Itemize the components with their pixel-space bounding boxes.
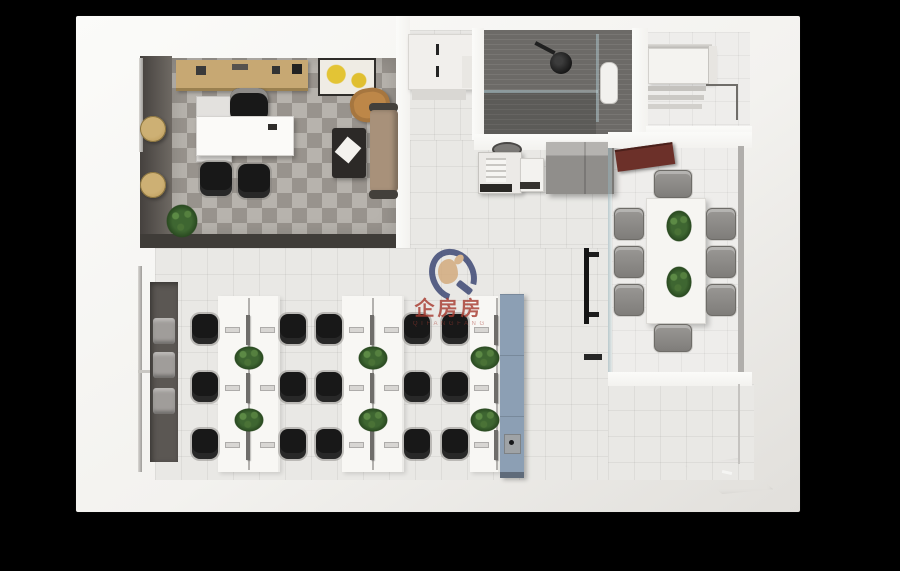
sofa [370,110,398,192]
meeting-chair [614,246,644,278]
cabinet-handle [436,66,439,77]
office-chair [280,429,306,459]
meeting-room-right-wall-edge [738,146,744,374]
qifangfang-logo [422,246,476,298]
keyboard [260,385,275,391]
plant [358,346,388,370]
office-chair [404,429,430,459]
gray-cabinet [546,142,614,194]
counter-edge [706,84,738,86]
desk-phone [268,124,277,130]
shower-fixture [550,52,572,74]
keyboard [384,442,399,448]
office-chair [316,372,342,402]
guest-chair [200,162,232,196]
storage-cabinet [648,48,714,84]
desk-bench [218,296,280,472]
bathroom-left-wall [472,28,484,140]
keyboard [349,327,364,333]
meeting-room-top-wall [608,132,752,148]
monitor [370,430,374,460]
keyboard [474,385,489,391]
credenza-phone [292,64,302,74]
doormat-mark [722,470,732,475]
storage-shelf [648,95,704,100]
niche-cushion [153,388,175,414]
keyboard [225,327,240,333]
office-chair [316,314,342,344]
meeting-chair [654,324,692,352]
water-dispenser-base [520,182,540,189]
bathroom-right-wall [632,28,648,132]
storage-shelf [648,86,706,91]
entry-glass-door [138,266,142,472]
office-chair [404,372,430,402]
watermark-title: 企房房 [394,298,504,320]
monitor [246,430,250,460]
credenza-item [196,66,206,75]
counter-edge [736,84,738,120]
keyboard [260,442,275,448]
office-chair [192,372,218,402]
niche-cushion [153,352,175,378]
guest-chair [238,164,270,198]
meeting-room-glass-wall [608,148,612,374]
plant [470,408,500,432]
monitor [494,430,498,460]
credenza-item [272,66,280,74]
plant [358,408,388,432]
office-chair [192,314,218,344]
meeting-chair [654,170,692,198]
meeting-chair [706,284,736,316]
glass-partition [484,90,598,93]
meeting-chair [614,208,644,240]
keyboard [225,385,240,391]
monitor [370,315,374,345]
plant [234,408,264,432]
meeting-chair [706,246,736,278]
keyboard [384,385,399,391]
plant [666,210,692,242]
meeting-chair [706,208,736,240]
device-dot [509,440,514,445]
keyboard [225,442,240,448]
plant [234,346,264,370]
gray-cabinet-seam [584,142,586,194]
storage-shelf [648,104,702,109]
glass-partition [596,34,599,122]
tv-bracket [589,312,599,317]
keyboard [349,385,364,391]
monitor [370,373,374,403]
plant [470,346,500,370]
toilet [600,62,618,104]
pouf [140,172,166,198]
watermark-subtitle: Q I F A N G F A N G [394,321,504,327]
watermark: 企房房 Q I F A N G F A N G [394,246,504,327]
monitor [246,315,250,345]
office-chair [280,372,306,402]
plant [666,266,692,298]
office-chair [442,372,468,402]
copier-panel [486,158,506,182]
meeting-room-bottom-wall [608,372,752,386]
blue-cabinet-end [500,472,524,478]
keyboard [474,327,489,333]
rendered-floorplan-image: 企房房 Q I F A N G F A N G [0,0,900,571]
pouf [140,116,166,142]
office-chair [442,429,468,459]
monitor [246,373,250,403]
keyboard [260,327,275,333]
plant [166,204,198,238]
executive-desk [196,116,294,156]
closet-shelf [412,90,466,100]
storage-cabinet-side [708,46,717,86]
tv-stand-base [584,354,602,360]
entrance-glass-edge [738,384,740,464]
keyboard [474,442,489,448]
cabinet-handle [436,44,439,55]
sofa-arm [369,190,398,199]
meeting-chair [614,284,644,316]
niche-cushion [153,318,175,344]
keyboard [384,327,399,333]
office-chair [316,429,342,459]
credenza-item [232,64,248,70]
shower-zone [482,92,596,140]
tv-bracket [589,252,599,257]
keyboard [349,442,364,448]
executive-office-door [139,58,143,152]
office-chair [280,314,306,344]
copier-front-strip [480,184,512,192]
monitor [494,373,498,403]
office-chair [192,429,218,459]
